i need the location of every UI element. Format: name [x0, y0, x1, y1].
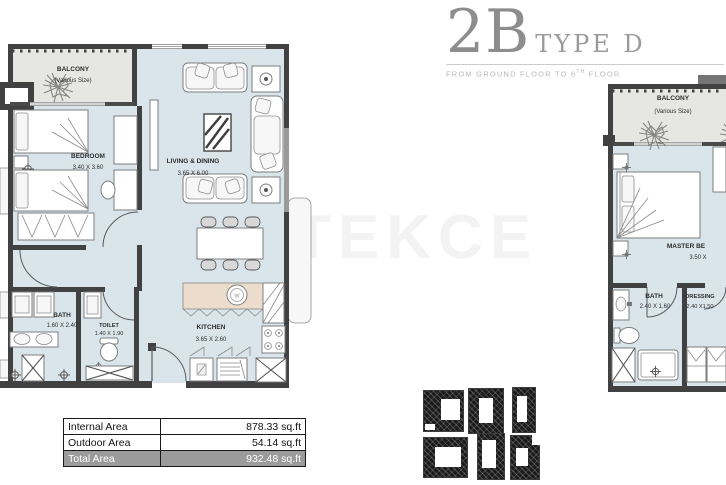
building-courtyard: [532, 435, 540, 445]
table-row-outdoor: Outdoor Area 54.14 sq.ft: [64, 435, 306, 451]
kitchen-counter: [183, 283, 263, 309]
building-courtyard: [479, 398, 493, 423]
building-courtyard: [441, 399, 460, 420]
desk-chair-icon: [101, 181, 115, 199]
basin-icon: [36, 334, 52, 345]
wardrobe-icon: [707, 347, 726, 382]
floor-range-subtitle: FROM GROUND FLOOR TO 6TH FLOOR: [446, 69, 726, 79]
dishwasher-icon: [217, 358, 247, 381]
total-area-value: 932.48 sq.ft: [161, 451, 306, 467]
building-courtyard: [482, 440, 496, 468]
internal-area-value: 878.33 sq.ft: [161, 419, 306, 435]
bath-label: BATH: [53, 312, 71, 319]
service-balcony: [288, 198, 311, 323]
outdoor-area-label: Outdoor Area: [64, 435, 161, 451]
bath-dims-label: 1.60 X 2.40: [47, 323, 78, 329]
tv-unit-icon: [150, 100, 158, 170]
side-table-lamp-icon: [252, 66, 280, 92]
living-dims-label: 3.65 X 6.00: [178, 171, 209, 177]
bath-label: BATH: [645, 293, 663, 300]
tall-cabinet-icon: [263, 283, 284, 323]
right-floor-plan: BALCONY (Various Size) MASTER BE 3.50 X …: [596, 70, 726, 400]
sofa-icon: [183, 62, 247, 92]
balcony-label: BALCONY: [57, 66, 90, 73]
unit-code: 2B: [446, 4, 530, 61]
table-row-total: Total Area 932.48 sq.ft: [64, 451, 306, 467]
unit-type-title: 2B TYPE D: [446, 4, 726, 61]
adjacent-unit-fragment: [0, 292, 9, 318]
dressing-label: DRESSING: [685, 294, 714, 300]
toilet-label: TOILET: [99, 323, 119, 329]
bedroom-dims-label: 3.40 X 3.60: [73, 165, 104, 171]
double-bed-icon: [617, 172, 700, 238]
area-summary-table: Internal Area 878.33 sq.ft Outdoor Area …: [63, 418, 306, 467]
kitchen-label: KITCHEN: [197, 324, 226, 331]
shower-icon: [612, 348, 635, 382]
master-bedroom-label: MASTER BE: [667, 243, 706, 250]
stove-icon: [262, 326, 285, 353]
living-label: LIVING & DINING: [167, 158, 220, 165]
balcony-label: BALCONY: [657, 95, 690, 102]
single-bed-icon: [14, 110, 88, 153]
dining-table-icon: [197, 228, 263, 259]
dining-set-icon: [197, 217, 263, 270]
wc-icon: [614, 328, 639, 344]
desk-icon: [114, 170, 137, 210]
balcony-size-label: (Various Size): [654, 109, 691, 115]
dresser-icon: [713, 147, 726, 192]
svg-text:W: W: [234, 294, 240, 300]
dresser-icon: [114, 116, 137, 164]
sink-icon: W: [227, 285, 247, 305]
side-table-lamp-icon: [252, 177, 280, 203]
window-band: [284, 128, 289, 212]
kitchen-dims-label: 3.65 X 2.60: [196, 337, 227, 343]
building-courtyard: [435, 447, 461, 467]
building-courtyard: [517, 396, 527, 422]
wardrobe-icon: [687, 347, 706, 382]
washer-icon: [190, 358, 213, 381]
unit-type-label: TYPE D: [535, 30, 645, 58]
building-courtyard: [516, 448, 528, 466]
left-floor-plan: W: [0, 30, 320, 400]
rug-icon: [204, 114, 231, 151]
shaft-icon: [256, 358, 286, 382]
dressing-dims-label: 2.40 X1.50: [686, 304, 713, 310]
title-block: 2B TYPE D FROM GROUND FLOOR TO 6TH FLOOR: [446, 4, 726, 79]
wc-icon: [100, 338, 118, 361]
dressing-wardrobes: [687, 347, 726, 382]
single-bed-icon: [14, 170, 88, 211]
total-area-label: Total Area: [64, 451, 161, 467]
basin-icon: [14, 334, 30, 345]
internal-area-label: Internal Area: [64, 419, 161, 435]
bedroom-label: BEDROOM: [71, 153, 105, 160]
subtitle-prefix: FROM GROUND FLOOR TO 6: [446, 70, 576, 79]
table-row-internal: Internal Area 878.33 sq.ft: [64, 419, 306, 435]
toilet-dims-label: 1.40 X 1.90: [95, 331, 124, 337]
wardrobe-icon: [18, 213, 94, 240]
subtitle-suffix: FLOOR: [585, 70, 620, 79]
shower-icon: [22, 355, 44, 381]
building-courtyard: [425, 424, 435, 430]
bath-dims-label: 2.40 X 1.60: [640, 304, 671, 310]
floor-hatch: [86, 366, 133, 380]
outdoor-area-value: 54.14 sq.ft: [161, 435, 306, 451]
nightstand-icon: [613, 154, 631, 172]
master-bedroom-dims-label: 3.50 X: [689, 255, 706, 261]
vanity-icon: [613, 290, 632, 320]
tekce-watermark: TEKCE: [293, 202, 538, 273]
adjacent-unit-fragment: [0, 360, 9, 378]
nightstand-icon: [613, 241, 631, 259]
chaise-sofa-icon: [251, 96, 283, 172]
sofa-icon: [183, 174, 247, 203]
balcony-size-label: (Various Size): [54, 78, 91, 84]
site-plan-thumbnail: [422, 386, 544, 482]
shower-tray-icon: [638, 350, 678, 380]
